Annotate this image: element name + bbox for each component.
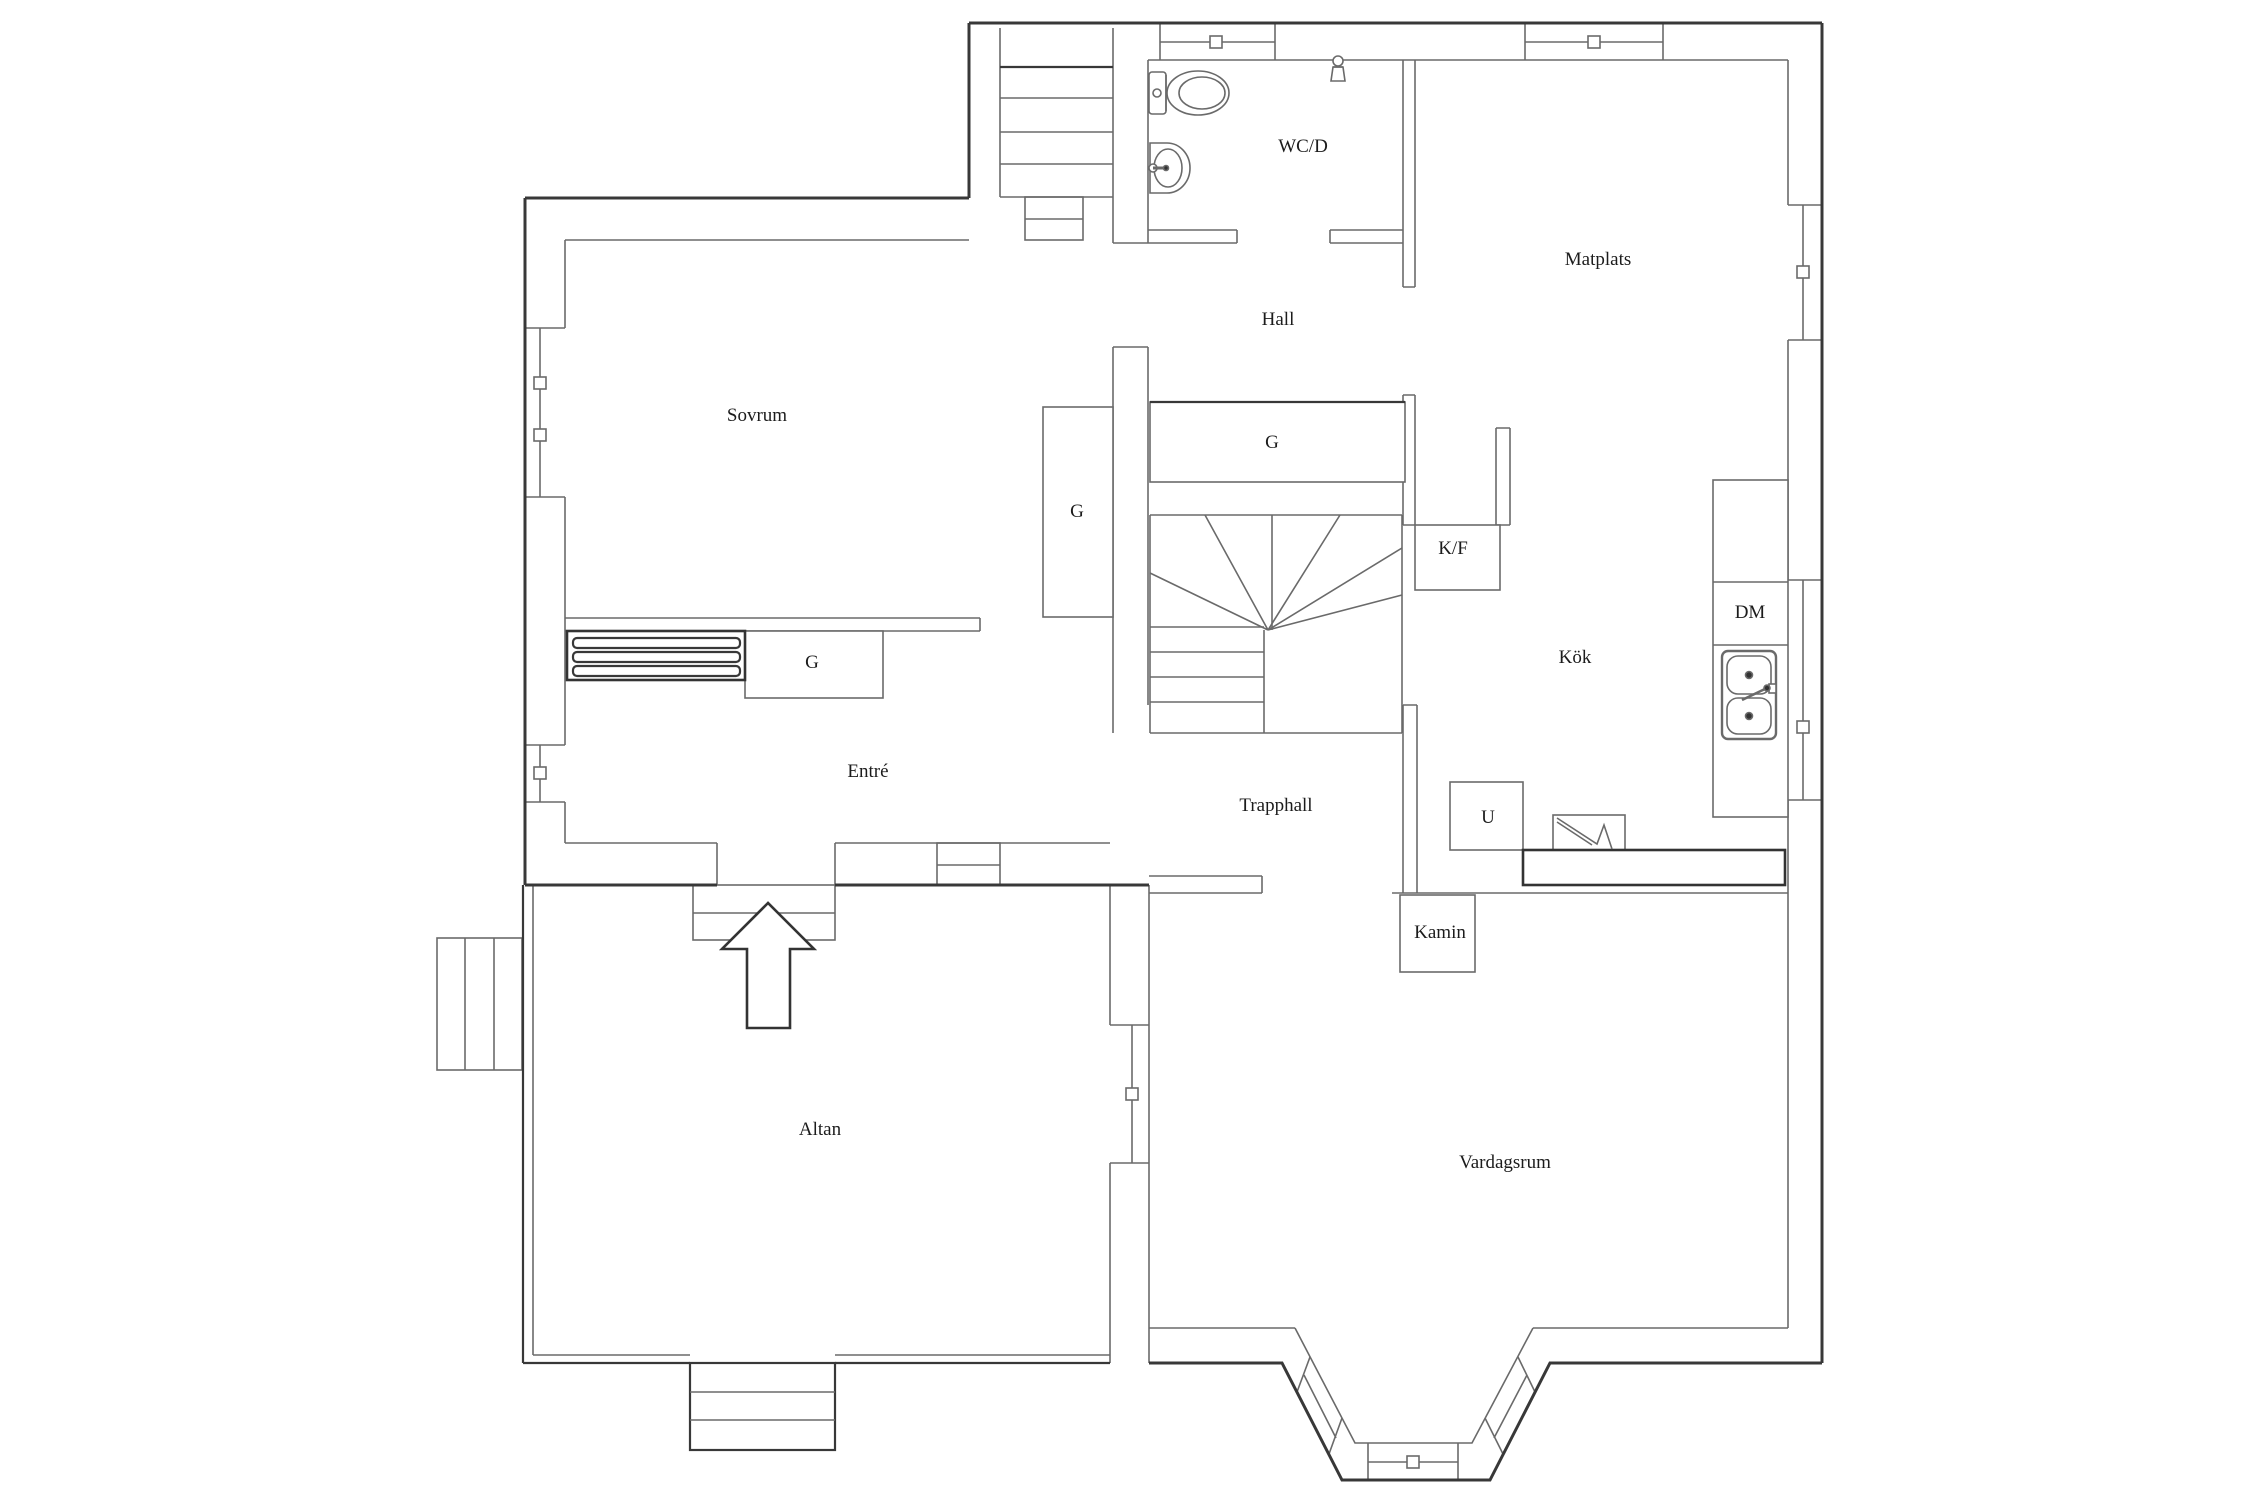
fixture-label-ugn: U (1481, 807, 1495, 828)
fixture-label-kamin: Kamin (1414, 922, 1466, 943)
window-marker (534, 377, 546, 389)
kitchen-counter-band (1523, 850, 1785, 885)
bathroom-fixtures (1149, 56, 1345, 193)
exterior-walls (523, 23, 1822, 1480)
winder-stairs (1150, 515, 1402, 733)
room-label-sovrum: Sovrum (727, 405, 787, 426)
room-label-wcd: WC/D (1278, 136, 1328, 157)
kitchen-counter-column (1713, 480, 1788, 817)
altan-steps (690, 1363, 835, 1450)
window-marker (1210, 36, 1222, 48)
room-label-matplats: Matplats (1565, 249, 1632, 270)
window-marker (1126, 1088, 1138, 1100)
shower-icon (1331, 56, 1345, 81)
window-marker (1407, 1456, 1419, 1468)
shoe-rack-icon (567, 631, 745, 680)
window-marker (1588, 36, 1600, 48)
floor-plan: Sovrum WC/D Hall Matplats Entré Trapphal… (0, 0, 2250, 1500)
fixture-label-g-hall: G (1265, 432, 1279, 453)
interior-walls (437, 23, 1822, 1480)
room-label-trapphall: Trapphall (1239, 795, 1312, 816)
window-marker (534, 429, 546, 441)
room-label-vardagsrum: Vardagsrum (1459, 1152, 1551, 1173)
window-marker (534, 767, 546, 779)
stove-box (1553, 815, 1625, 850)
room-label-kok: Kök (1559, 647, 1592, 668)
entrance-arrow-icon (722, 903, 814, 1028)
washbasin-icon (1149, 143, 1190, 193)
room-label-altan: Altan (799, 1119, 842, 1140)
fixture-label-g-sovrum: G (1070, 501, 1084, 522)
toilet-icon (1149, 71, 1229, 115)
fixture-label-kf: K/F (1438, 538, 1468, 559)
room-label-entre: Entré (847, 761, 888, 782)
kitchen-sink-icon (1722, 651, 1776, 739)
window-marker (1797, 721, 1809, 733)
fixture-label-dm: DM (1735, 602, 1766, 623)
fixture-label-g-entre: G (805, 652, 819, 673)
window-marker (1797, 266, 1809, 278)
room-label-hall: Hall (1262, 309, 1295, 330)
floor-plan-page: Sovrum WC/D Hall Matplats Entré Trapphal… (0, 0, 2250, 1500)
